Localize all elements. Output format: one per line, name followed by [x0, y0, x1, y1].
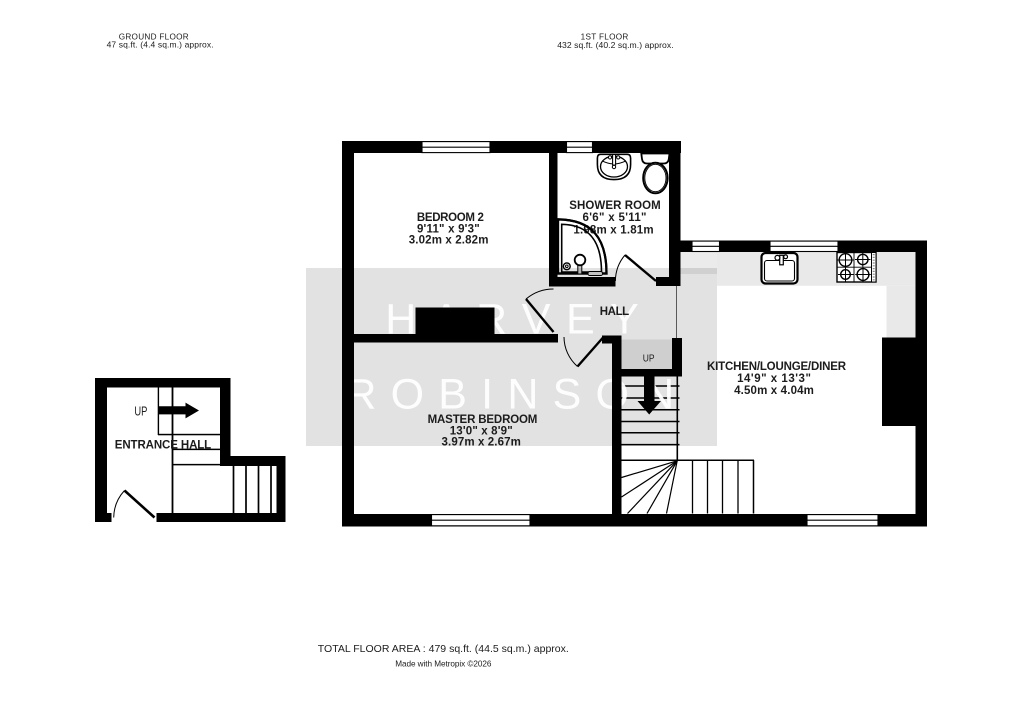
svg-text:ENTRANCE HALL: ENTRANCE HALL: [115, 440, 211, 452]
svg-text:SHOWER ROOM: SHOWER ROOM: [569, 200, 660, 212]
svg-text:ROBINSON: ROBINSON: [345, 371, 688, 419]
svg-text:Made with Metropix ©2026: Made with Metropix ©2026: [395, 660, 492, 669]
svg-text:13'0" x 8'9": 13'0" x 8'9": [450, 425, 513, 437]
svg-text:TOTAL FLOOR AREA : 479 sq.ft.: TOTAL FLOOR AREA : 479 sq.ft. (44.5 sq.m…: [318, 643, 569, 655]
svg-text:HALL: HALL: [600, 306, 629, 318]
svg-text:UP: UP: [643, 353, 655, 364]
svg-text:MASTER BEDROOM: MASTER BEDROOM: [428, 414, 538, 426]
svg-text:9'11" x 9'3": 9'11" x 9'3": [417, 223, 480, 235]
svg-text:432 sq.ft. (40.2 sq.m.) approx: 432 sq.ft. (40.2 sq.m.) approx.: [557, 40, 673, 50]
svg-text:14'9" x 13'3": 14'9" x 13'3": [737, 373, 811, 385]
svg-text:3.02m x 2.82m: 3.02m x 2.82m: [409, 235, 489, 247]
svg-text:4.50m x 4.04m: 4.50m x 4.04m: [734, 385, 814, 397]
svg-text:6'6" x 5'11": 6'6" x 5'11": [583, 212, 647, 224]
svg-text:UP: UP: [134, 405, 147, 419]
svg-text:KITCHEN/LOUNGE/DINER: KITCHEN/LOUNGE/DINER: [707, 361, 847, 373]
svg-text:3.97m x 2.67m: 3.97m x 2.67m: [442, 437, 521, 449]
svg-text:47 sq.ft. (4.4 sq.m.) approx.: 47 sq.ft. (4.4 sq.m.) approx.: [107, 40, 214, 50]
